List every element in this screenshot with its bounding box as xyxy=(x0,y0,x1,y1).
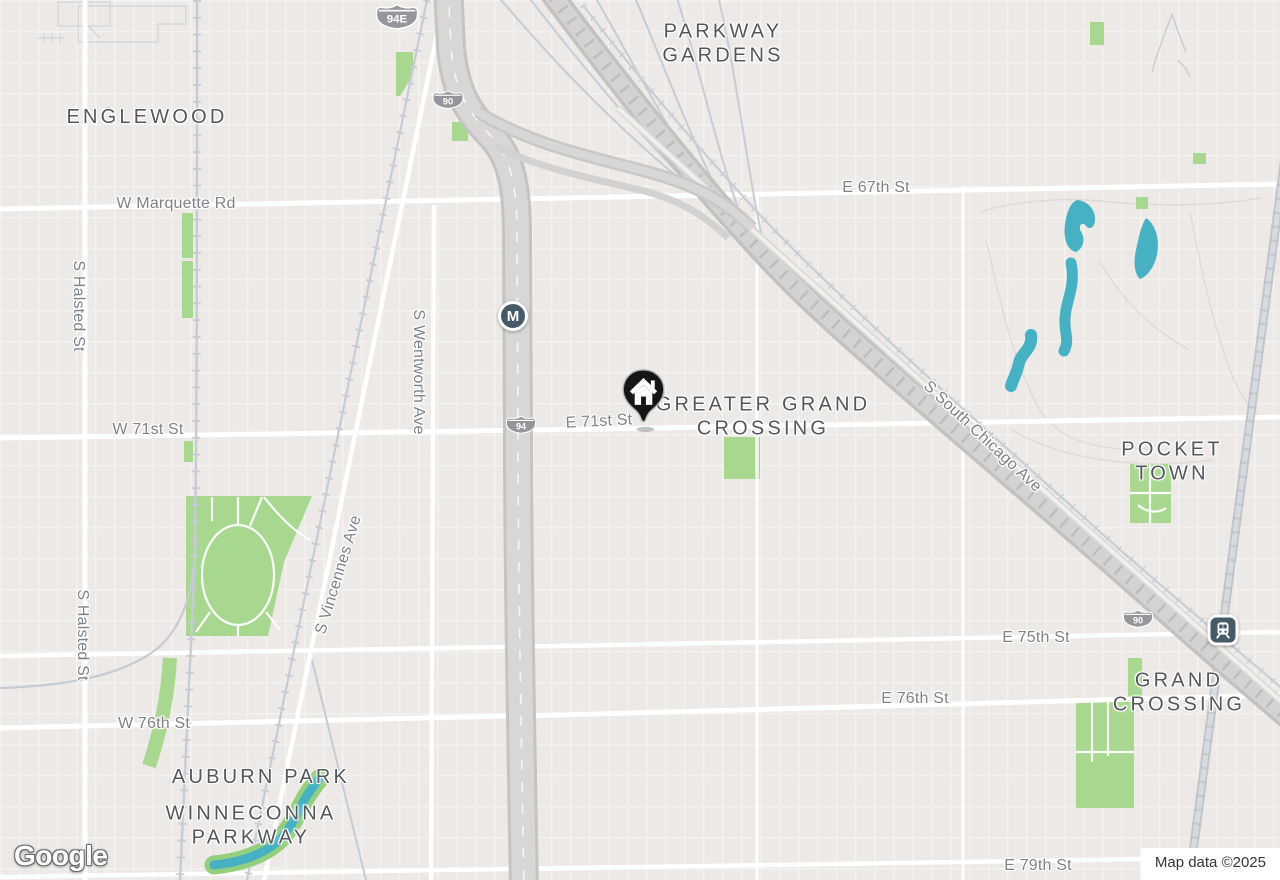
route-shield-90-bottom: 90 xyxy=(1123,607,1154,635)
metro-station-glyph: M xyxy=(507,308,520,325)
google-logo[interactable]: Google xyxy=(14,840,107,872)
map-canvas[interactable]: ENGLEWOOD PARKWAY GARDENS GREATER GRAND … xyxy=(0,0,1280,880)
interstate-shield-icon: 94 xyxy=(506,413,537,436)
route-shield-94: 94 xyxy=(506,413,537,441)
route-shield-94e: 94E xyxy=(375,3,419,35)
svg-text:90: 90 xyxy=(443,96,453,107)
home-marker[interactable] xyxy=(621,367,666,438)
route-shield-90-top: 90 xyxy=(432,87,464,117)
map-attribution: Map data ©2025 xyxy=(1141,848,1280,880)
svg-text:90: 90 xyxy=(1133,616,1143,626)
home-pin-icon xyxy=(621,367,666,433)
svg-text:94E: 94E xyxy=(387,14,408,26)
interstate-shield-icon: 90 xyxy=(432,87,464,112)
train-icon xyxy=(1215,622,1232,639)
rail-station-icon[interactable] xyxy=(1208,615,1239,646)
svg-text:94: 94 xyxy=(516,422,526,432)
metro-station-icon[interactable]: M xyxy=(498,301,528,331)
interstate-shield-icon: 94E xyxy=(375,3,419,30)
map-base-layer xyxy=(0,0,1280,880)
interstate-shield-icon: 90 xyxy=(1123,607,1154,630)
